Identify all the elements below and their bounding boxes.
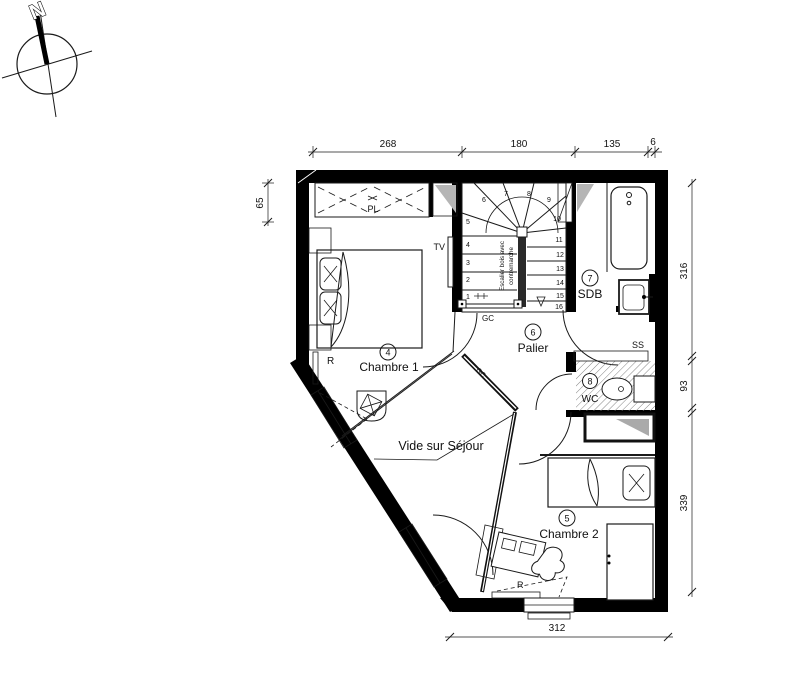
closet-label: PL <box>367 204 378 214</box>
stair-newel <box>517 227 527 237</box>
dim-bottom-312: 312 <box>549 623 566 634</box>
dim-top-135: 135 <box>604 139 621 150</box>
dim-right-316: 316 <box>679 262 690 279</box>
room-chambre1: R TV 4 Chambre 1 <box>309 228 453 421</box>
north-label: N <box>26 0 49 25</box>
dim-top-268: 268 <box>380 139 397 150</box>
tv-icon <box>448 237 453 287</box>
north-arrow: N <box>2 0 92 117</box>
svg-text:1: 1 <box>466 294 470 301</box>
room-name-sdb: SDB <box>578 287 603 301</box>
stair-note-2: contremarche <box>508 247 515 285</box>
svg-text:6: 6 <box>482 197 486 204</box>
dim-left-65: 65 <box>255 197 266 209</box>
window-bottom <box>524 598 574 619</box>
svg-text:2: 2 <box>466 277 470 284</box>
svg-text:3: 3 <box>466 260 470 267</box>
svg-text:16: 16 <box>555 304 563 311</box>
staircase: 1 2 3 4 5 6 7 8 9 10 11 12 13 14 15 16 E… <box>458 183 566 323</box>
pillow-icon <box>623 466 650 500</box>
wardrobe <box>607 524 653 600</box>
tv-label: TV <box>433 242 445 252</box>
svg-text:13: 13 <box>556 266 564 273</box>
dim-top-180: 180 <box>511 139 528 150</box>
svg-text:7: 7 <box>504 191 508 198</box>
towel-rail-label: SS <box>632 340 644 350</box>
towel-rail-icon <box>574 351 648 361</box>
cupboard <box>585 414 654 441</box>
dim-right-339: 339 <box>679 494 690 511</box>
floor-plan-canvas: N 268 180 135 6 65 <box>0 0 799 687</box>
sink-icon <box>619 280 653 314</box>
room-name-wc: WC <box>582 394 599 405</box>
stair-note-1: Escalier bois avec <box>499 241 506 291</box>
dim-right-93: 93 <box>679 380 690 392</box>
void-label: Vide sur Séjour <box>398 439 483 453</box>
room-sdb: 7 SDB <box>578 183 653 314</box>
guardrail-label: GC <box>482 314 494 323</box>
stair-stringer <box>518 237 526 307</box>
svg-text:5: 5 <box>564 514 569 524</box>
pillow-icon <box>320 292 341 324</box>
svg-text:4: 4 <box>385 348 390 358</box>
dimension-top: 268 180 135 6 <box>308 137 662 158</box>
svg-text:11: 11 <box>555 237 562 244</box>
room-chambre2: 5 Chambre 2 R <box>491 455 655 619</box>
svg-text:12: 12 <box>556 252 564 259</box>
svg-text:7: 7 <box>587 274 592 284</box>
room-name-chambre1: Chambre 1 <box>359 360 419 374</box>
room-name-palier: Palier <box>518 341 549 355</box>
bathtub-icon <box>611 187 647 269</box>
radiator-label: R <box>517 580 524 590</box>
void-leader-line <box>374 414 514 460</box>
dimension-right: 316 93 339 <box>679 179 696 597</box>
dim-top-6: 6 <box>650 137 656 148</box>
svg-text:9: 9 <box>547 197 551 204</box>
svg-text:8: 8 <box>527 191 531 198</box>
svg-text:6: 6 <box>530 328 535 338</box>
dimension-bottom: 312 <box>445 623 673 641</box>
svg-text:14: 14 <box>556 280 564 287</box>
stair-guardrail <box>458 300 522 308</box>
radiator-icon <box>309 228 331 253</box>
svg-text:15: 15 <box>556 293 564 300</box>
closet-pl: PL <box>315 183 457 217</box>
pillow-icon <box>320 258 341 290</box>
svg-text:8: 8 <box>587 377 592 387</box>
svg-text:5: 5 <box>466 219 470 226</box>
radiator-icon <box>492 592 540 598</box>
room-name-chambre2: Chambre 2 <box>539 527 599 541</box>
svg-text:10: 10 <box>553 216 561 223</box>
radiator-label: R <box>327 356 334 367</box>
diagonal-wall <box>290 355 463 612</box>
svg-text:4: 4 <box>466 242 470 249</box>
understair-shade <box>435 185 456 213</box>
dimension-left: 65 <box>255 179 274 226</box>
